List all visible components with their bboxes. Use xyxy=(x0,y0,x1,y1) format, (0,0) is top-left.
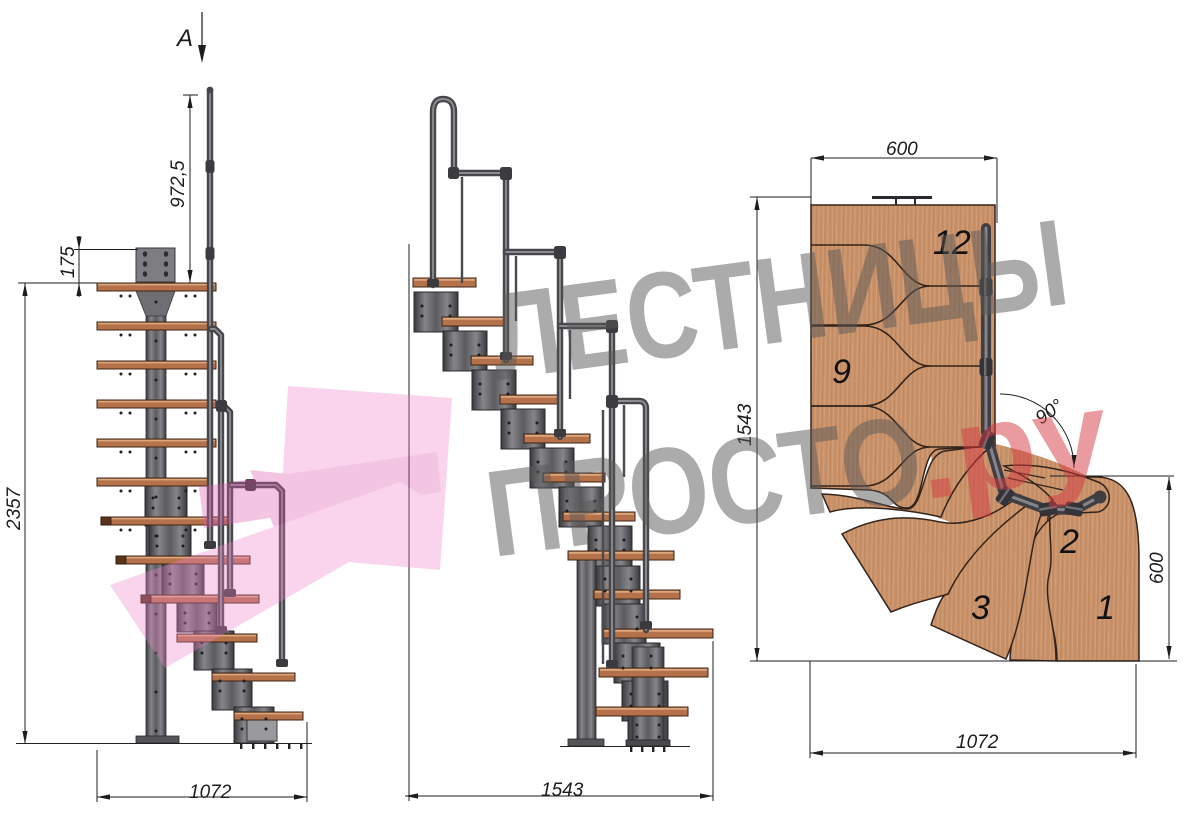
svg-text:2357: 2357 xyxy=(4,486,25,531)
svg-text:1072: 1072 xyxy=(189,782,232,803)
svg-text:.ру: .ру xyxy=(910,365,1116,526)
svg-text:3: 3 xyxy=(971,589,990,627)
svg-text:600: 600 xyxy=(886,139,918,160)
svg-text:1072: 1072 xyxy=(956,732,999,753)
svg-text:175: 175 xyxy=(58,246,79,278)
svg-text:972,5: 972,5 xyxy=(168,160,189,208)
svg-text:1543: 1543 xyxy=(541,780,584,801)
svg-text:A: A xyxy=(175,25,193,52)
svg-text:600: 600 xyxy=(1147,552,1168,584)
svg-text:1: 1 xyxy=(1096,589,1115,627)
svg-text:2: 2 xyxy=(1059,523,1079,561)
